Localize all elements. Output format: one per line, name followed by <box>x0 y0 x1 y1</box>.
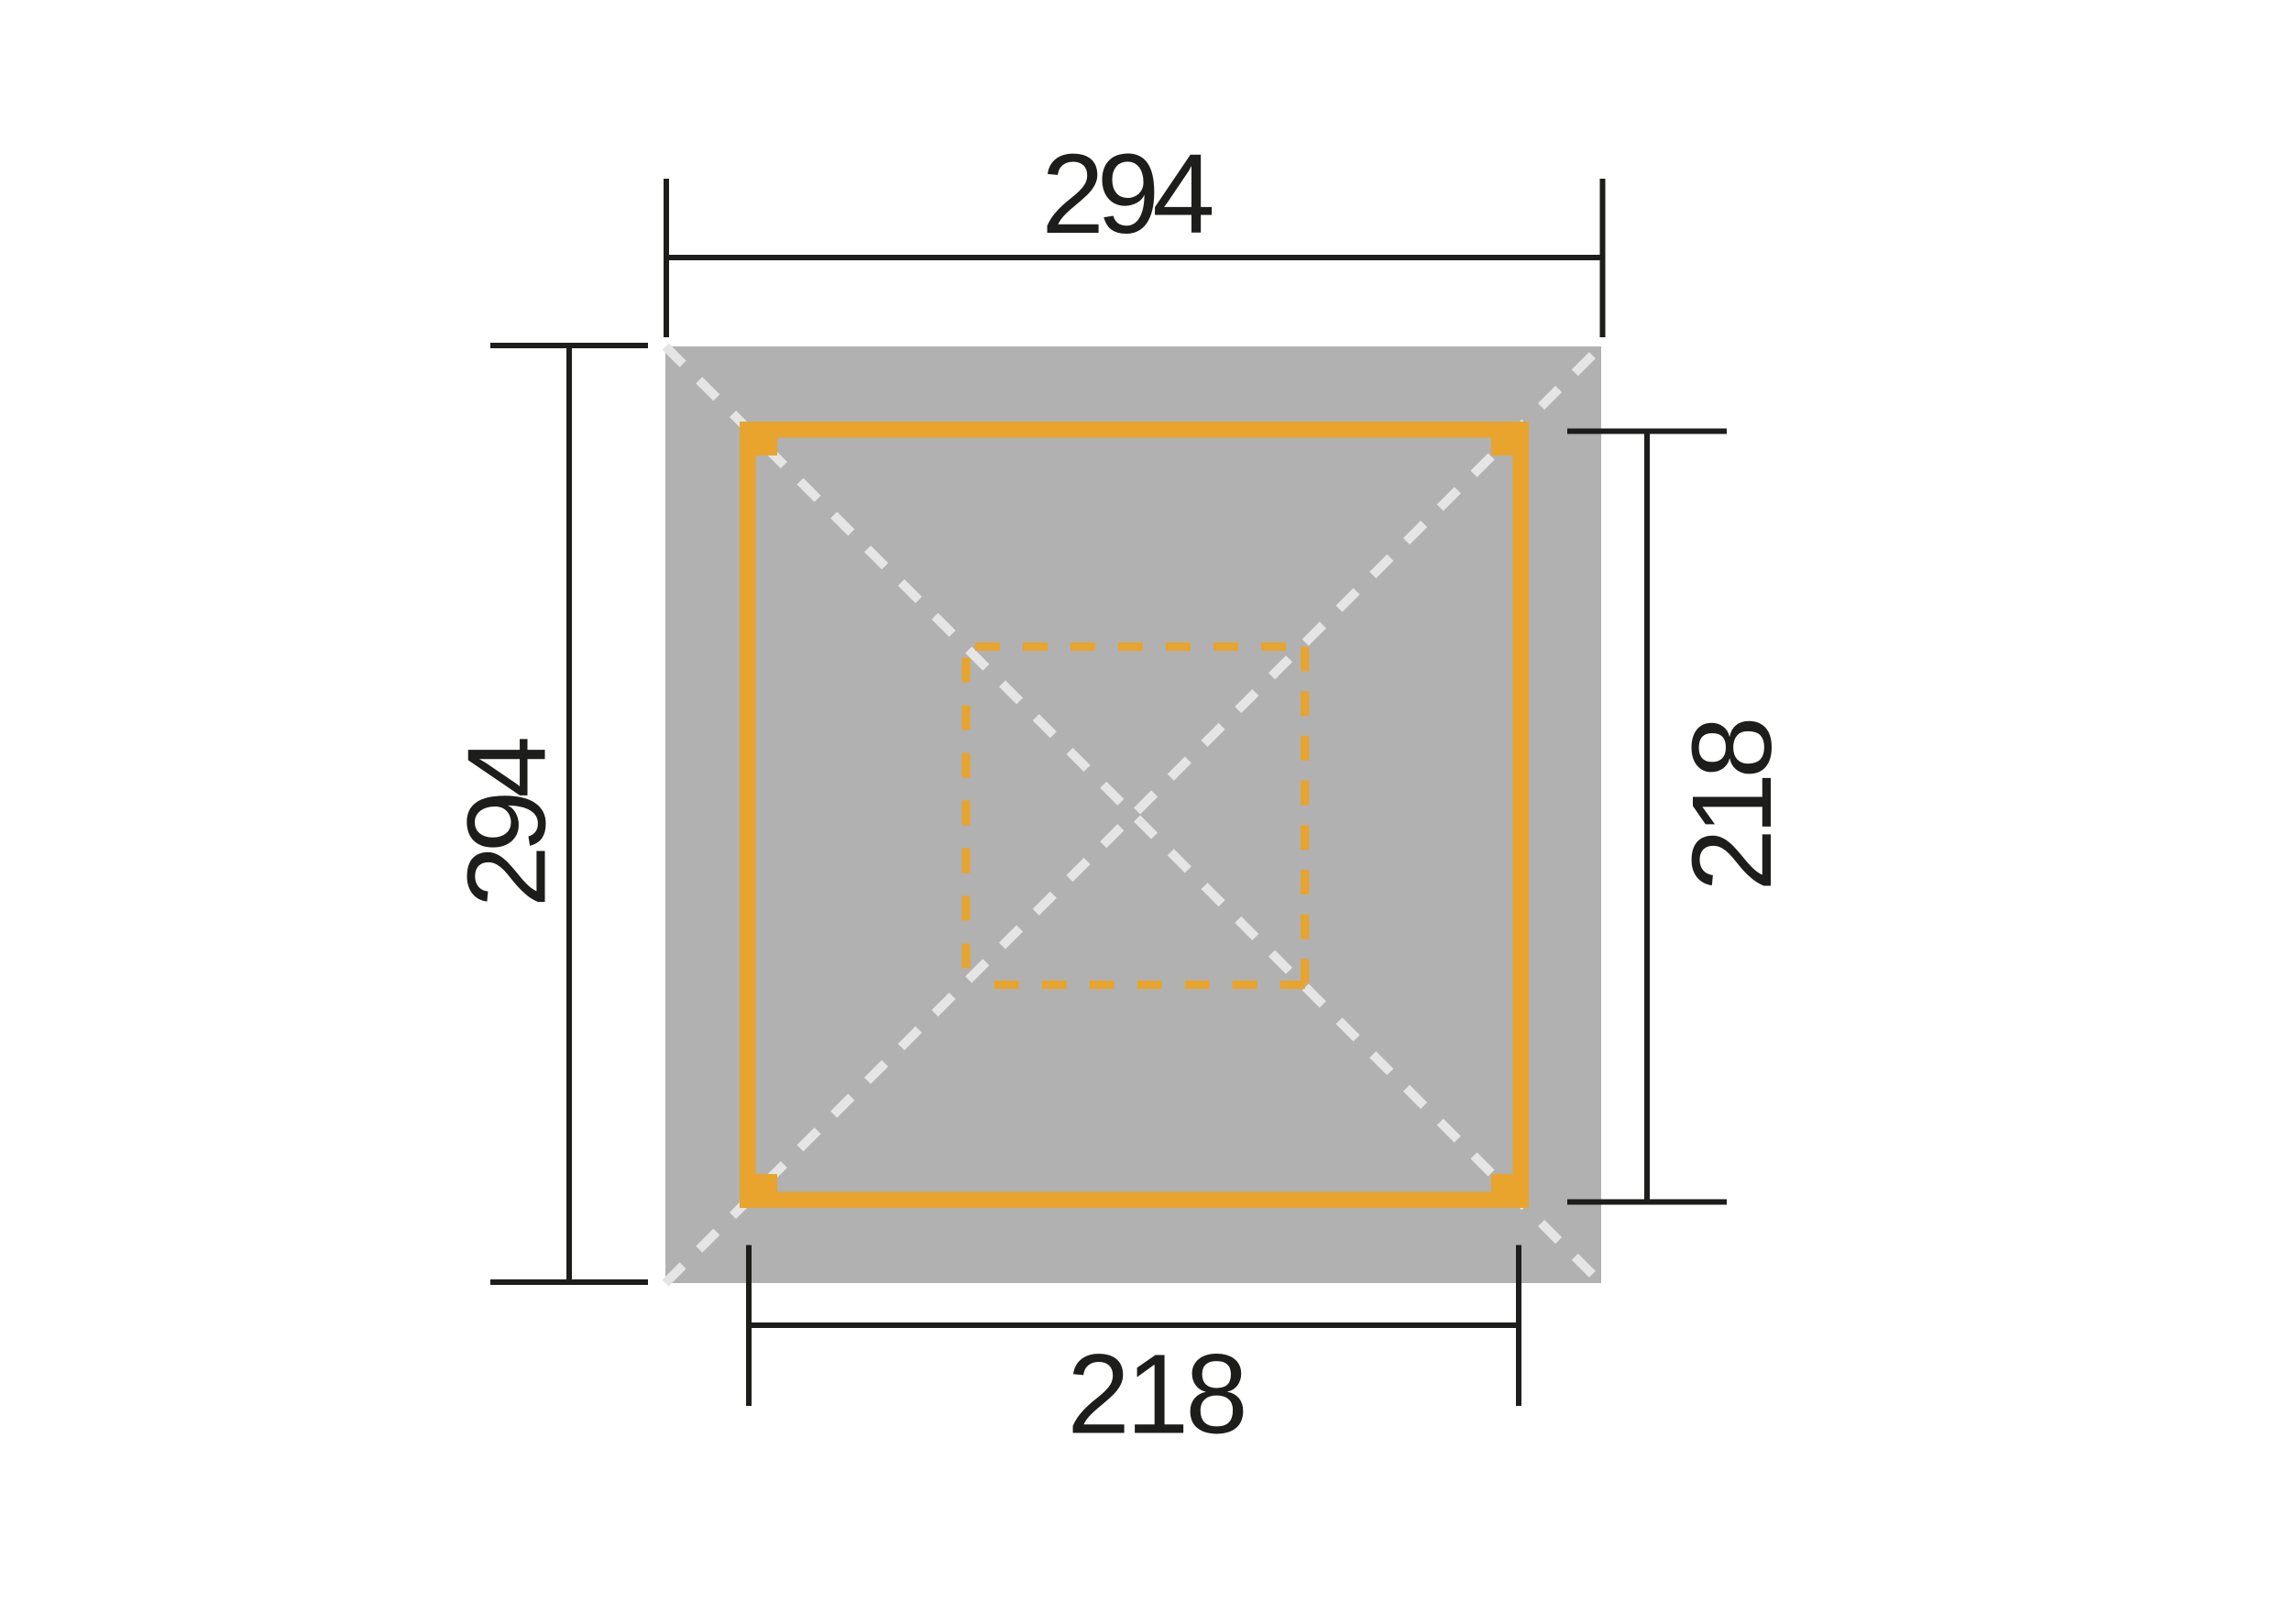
svg-text:218: 218 <box>1067 1333 1244 1458</box>
svg-text:218: 218 <box>1670 720 1795 892</box>
svg-text:294: 294 <box>1041 132 1212 258</box>
svg-text:294: 294 <box>445 739 569 908</box>
